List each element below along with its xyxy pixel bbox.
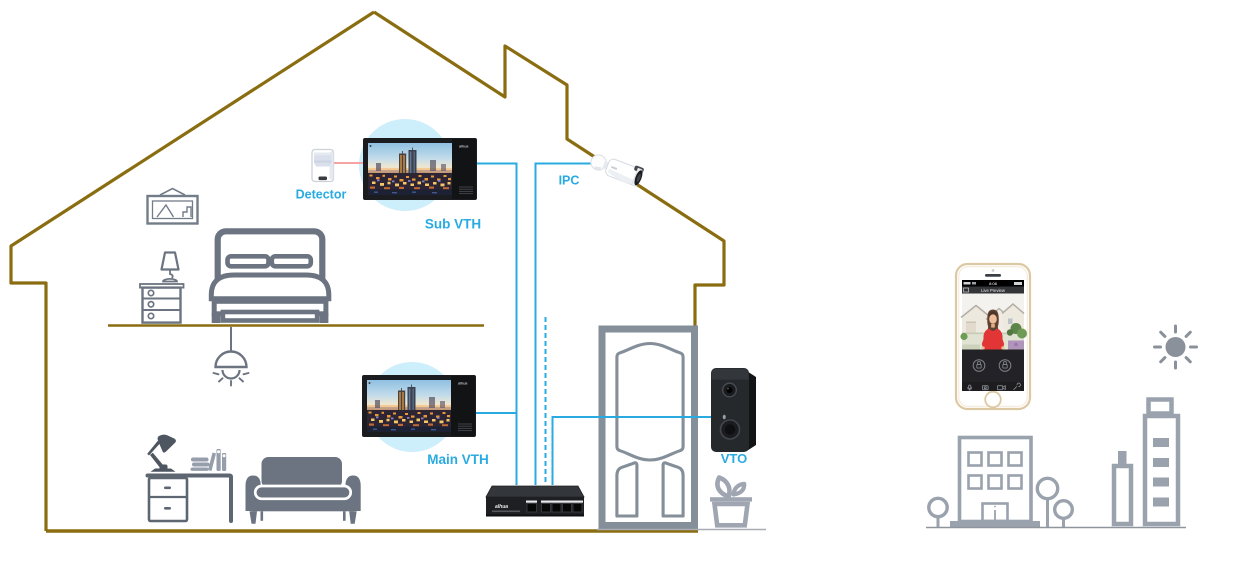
svg-text:IPC: IPC — [559, 174, 580, 188]
svg-text:Detector: Detector — [296, 188, 347, 202]
svg-text:VTO: VTO — [721, 451, 748, 466]
svg-text:alhua: alhua — [495, 504, 508, 510]
svg-text:Live Preview: Live Preview — [981, 288, 1006, 293]
svg-text:Sub VTH: Sub VTH — [425, 217, 481, 232]
svg-text:8:08: 8:08 — [989, 281, 998, 286]
svg-text:Main VTH: Main VTH — [427, 452, 489, 467]
